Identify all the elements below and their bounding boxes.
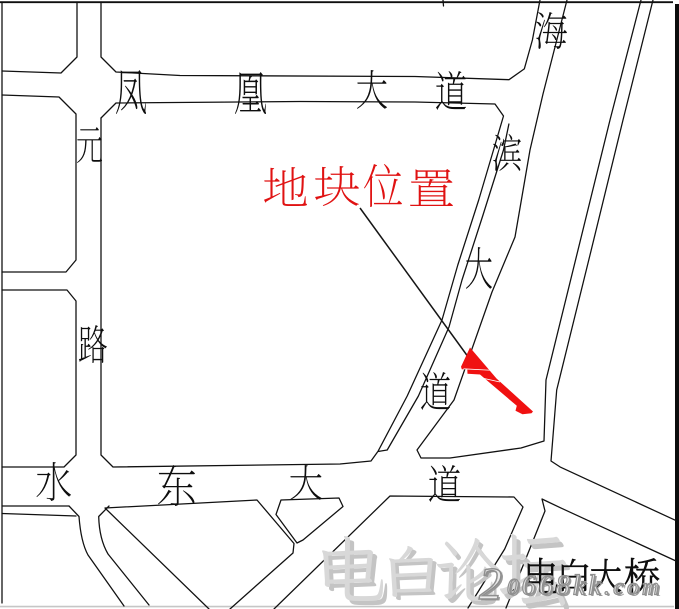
svg-text:0668kk.com: 0668kk.com bbox=[507, 571, 662, 602]
svg-text:2: 2 bbox=[479, 558, 502, 609]
